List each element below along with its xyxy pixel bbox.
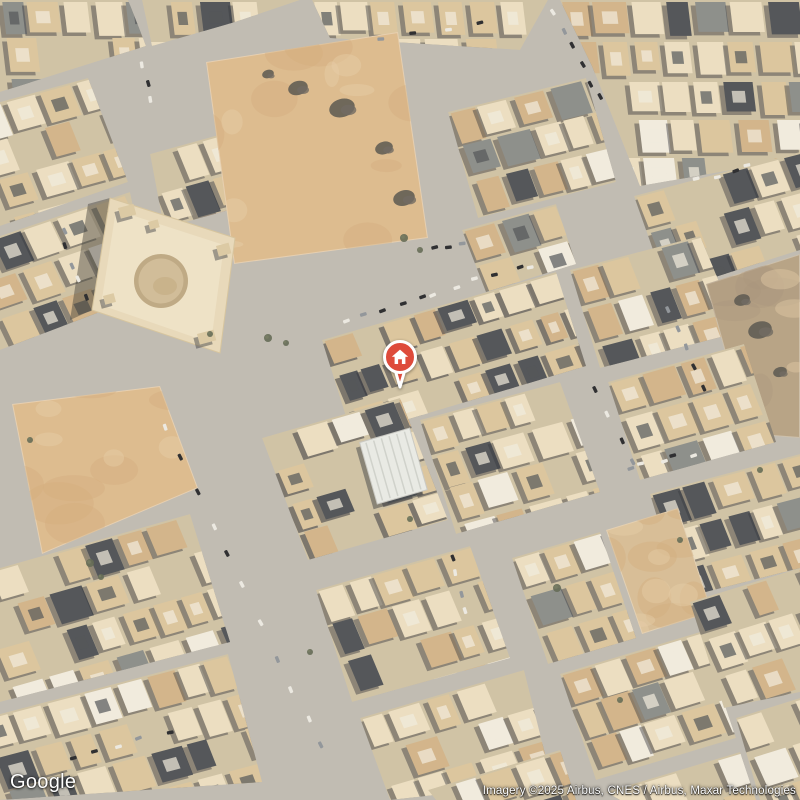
imagery-attribution: Imagery ©2025 Airbus, CNES / Airbus, Max… <box>483 785 796 797</box>
satellite-imagery <box>0 0 800 800</box>
place-marker-home[interactable] <box>378 335 422 393</box>
google-logo[interactable]: Google <box>10 771 76 794</box>
home-pin-icon <box>378 335 422 393</box>
satellite-map[interactable]: Google Imagery ©2025 Airbus, CNES / Airb… <box>0 0 800 800</box>
